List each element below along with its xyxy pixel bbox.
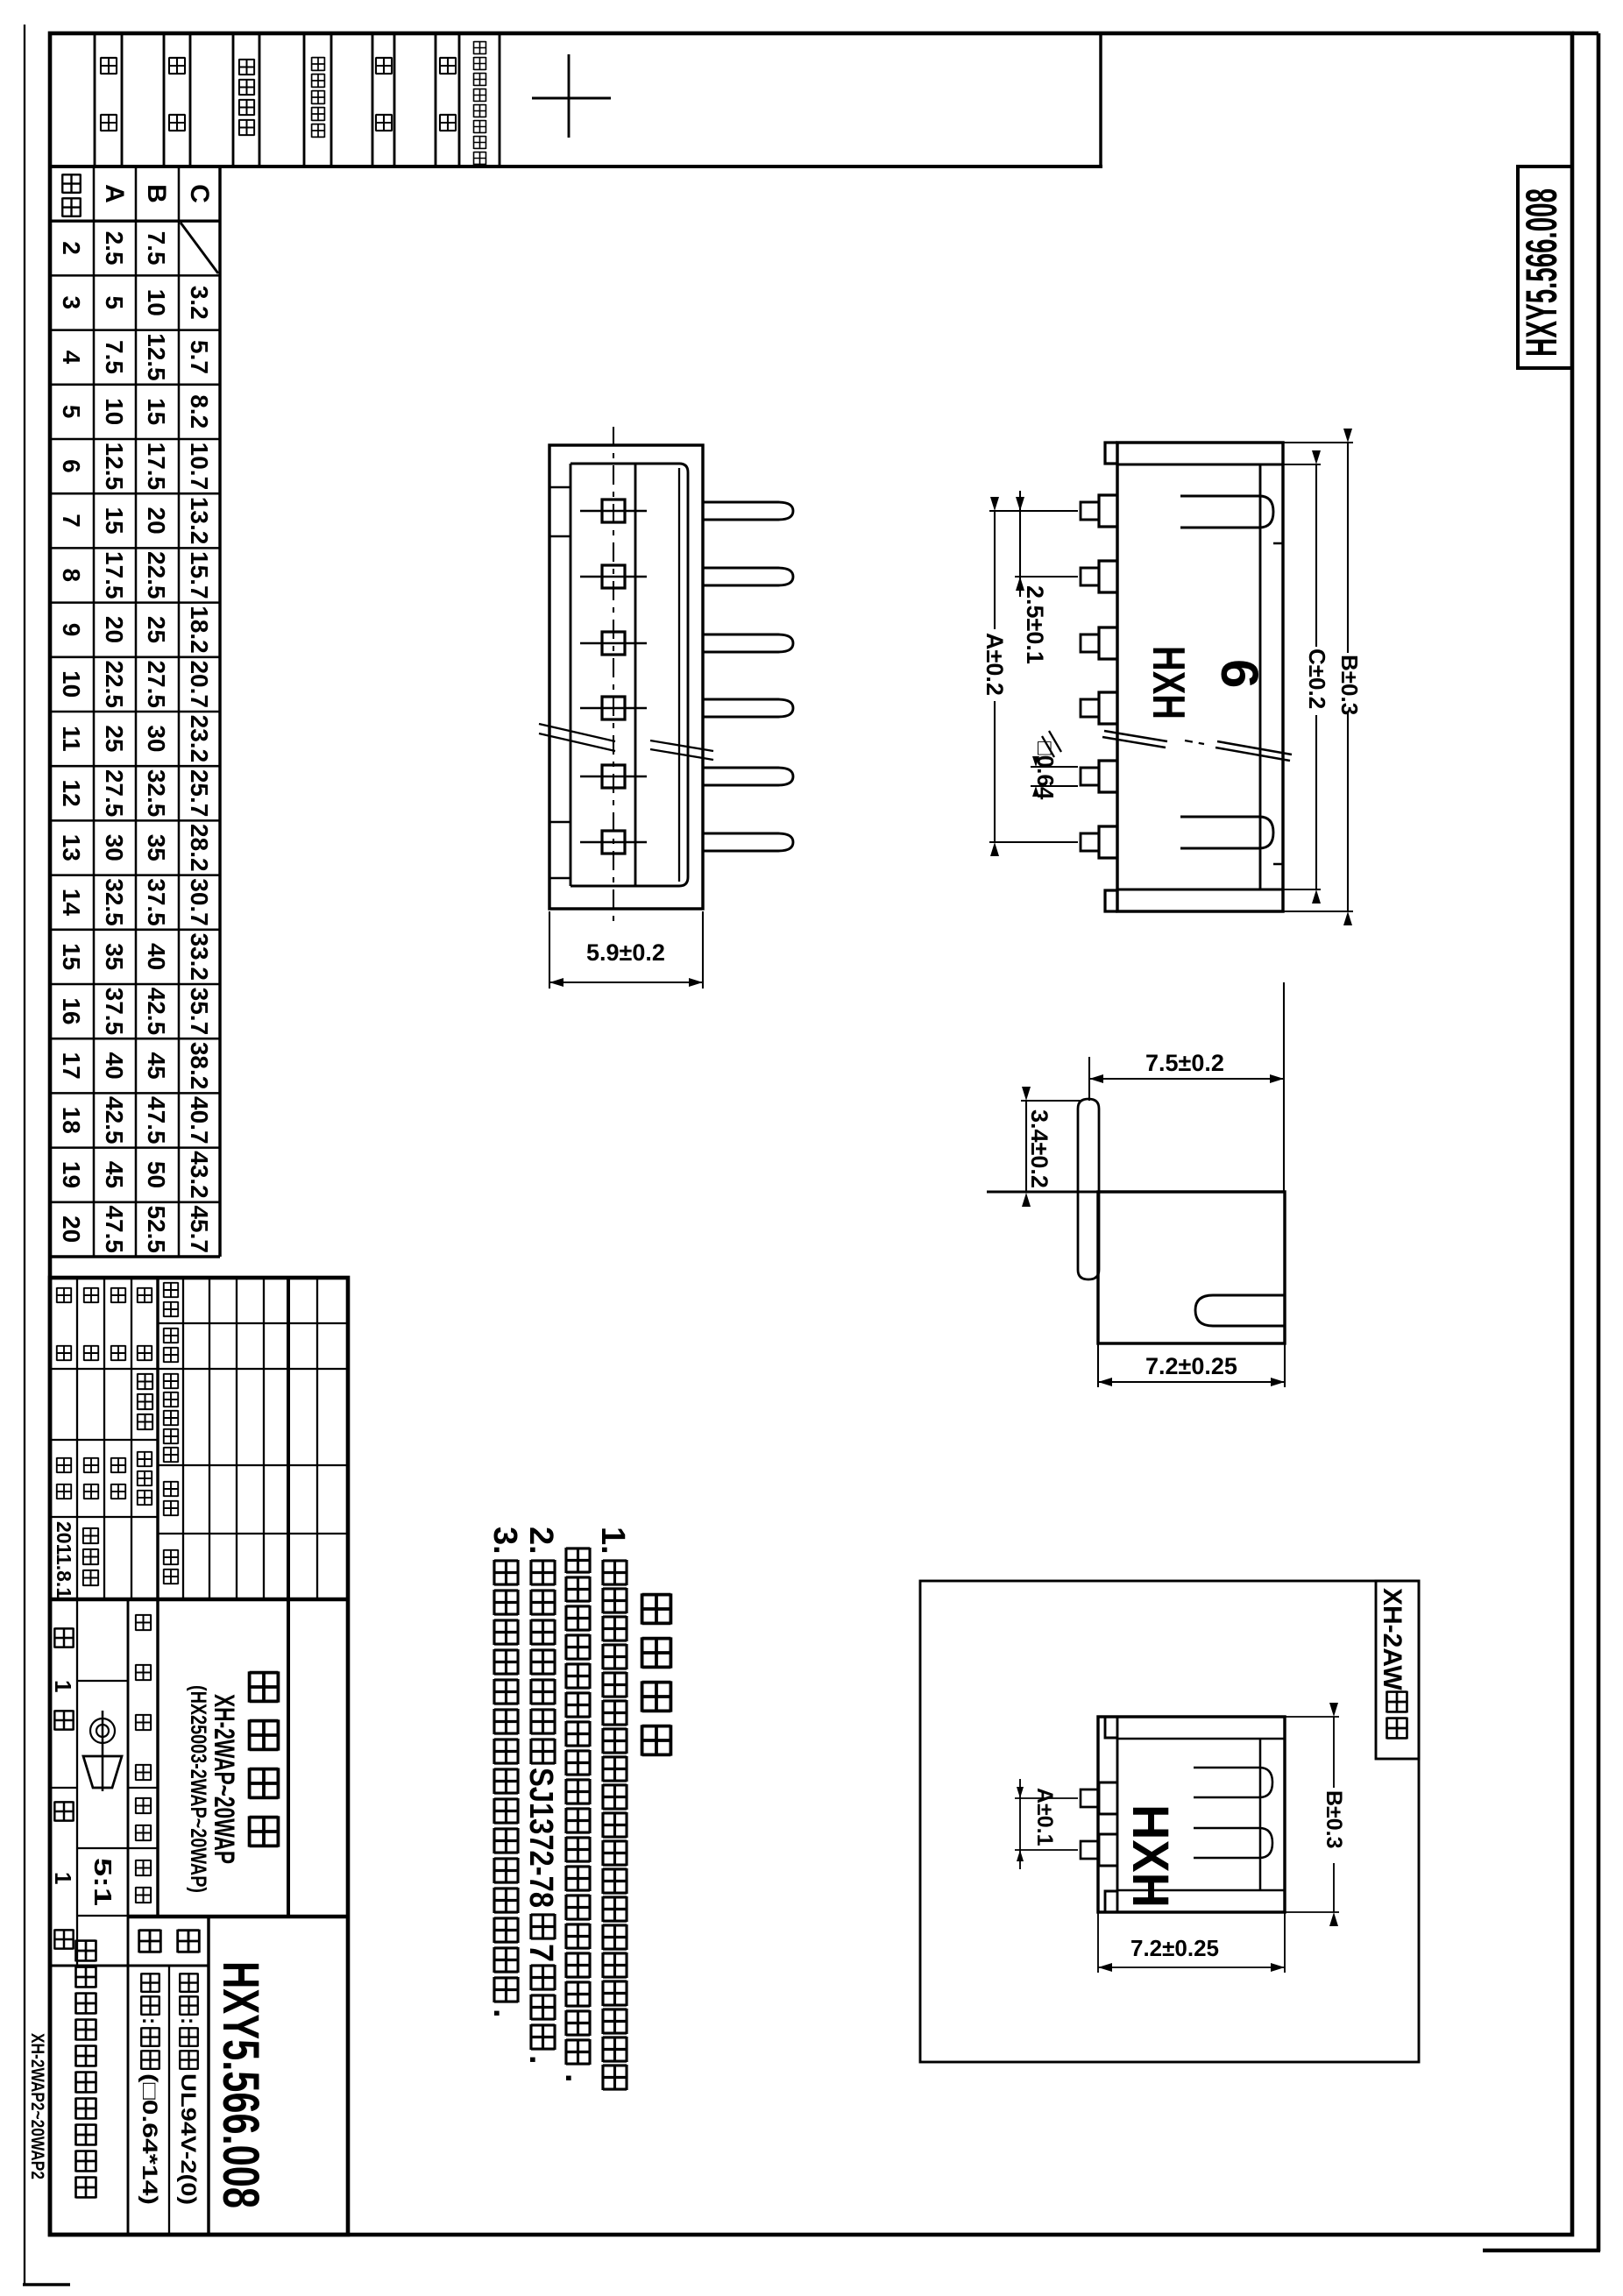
svg-text:30: 30 — [143, 725, 170, 752]
svg-text:37.5: 37.5 — [143, 878, 170, 926]
svg-text:HXH: HXH — [1122, 1804, 1179, 1908]
svg-text:43.2: 43.2 — [186, 1151, 213, 1199]
svg-text:5: 5 — [101, 296, 128, 310]
svg-text:15.7: 15.7 — [186, 551, 213, 599]
svg-text:52.5: 52.5 — [143, 1205, 170, 1253]
svg-text:38.2: 38.2 — [186, 1042, 213, 1090]
svg-text:1.: 1. — [594, 1527, 631, 1555]
svg-text:14: 14 — [58, 889, 85, 917]
svg-text:13: 13 — [58, 834, 85, 861]
svg-text:18.2: 18.2 — [186, 606, 213, 654]
svg-text:2011.8.1: 2011.8.1 — [53, 1521, 75, 1598]
svg-text:7.2±0.25: 7.2±0.25 — [1145, 1353, 1237, 1379]
svg-text:4: 4 — [58, 351, 85, 365]
svg-text:45.7: 45.7 — [186, 1205, 213, 1253]
svg-text:2.5: 2.5 — [101, 231, 128, 266]
svg-text:25.7: 25.7 — [186, 769, 213, 818]
svg-text:20: 20 — [143, 507, 170, 535]
svg-text:1: 1 — [50, 1680, 76, 1692]
svg-text:.: . — [486, 2009, 523, 2018]
svg-text:16: 16 — [58, 997, 85, 1024]
svg-text:.: . — [558, 2073, 595, 2083]
svg-text:9: 9 — [58, 623, 85, 637]
svg-text:1: 1 — [50, 1872, 76, 1884]
svg-text:12.5: 12.5 — [101, 443, 128, 491]
svg-text:19: 19 — [58, 1161, 85, 1188]
svg-text:45: 45 — [101, 1161, 128, 1188]
svg-text:6: 6 — [58, 459, 85, 473]
svg-text:2.5±0.1: 2.5±0.1 — [1022, 585, 1048, 664]
svg-text:2: 2 — [58, 241, 85, 255]
svg-text:3: 3 — [58, 296, 85, 310]
svg-text:3.: 3. — [486, 1527, 523, 1555]
svg-text:35: 35 — [143, 834, 170, 861]
svg-text:7.2±0.25: 7.2±0.25 — [1130, 1935, 1219, 1961]
svg-text:7.5: 7.5 — [143, 231, 170, 266]
svg-text:20: 20 — [58, 1215, 85, 1243]
svg-text:7.5±0.2: 7.5±0.2 — [1145, 1050, 1224, 1076]
svg-text:30: 30 — [101, 834, 128, 861]
svg-text:7: 7 — [522, 1944, 559, 1962]
svg-text:28.2: 28.2 — [186, 824, 213, 872]
svg-text:8.2: 8.2 — [186, 394, 213, 429]
svg-text:27.5: 27.5 — [101, 769, 128, 818]
svg-text:47.5: 47.5 — [143, 1096, 170, 1144]
svg-text:3.2: 3.2 — [186, 286, 213, 320]
svg-text:□0.64: □0.64 — [1032, 741, 1059, 800]
svg-text:12: 12 — [58, 780, 85, 807]
svg-text:40: 40 — [101, 1052, 128, 1080]
svg-text:25: 25 — [101, 725, 128, 752]
svg-text:2.: 2. — [522, 1527, 559, 1555]
svg-text:17.5: 17.5 — [143, 443, 170, 491]
svg-text:A±0.1: A±0.1 — [1032, 1788, 1057, 1846]
svg-text:B±0.3: B±0.3 — [1322, 1790, 1346, 1849]
svg-text:10: 10 — [143, 289, 170, 316]
svg-text:17: 17 — [58, 1052, 85, 1080]
svg-text:33.2: 33.2 — [186, 932, 213, 981]
svg-text:50: 50 — [143, 1161, 170, 1188]
svg-text:37.5: 37.5 — [101, 988, 128, 1036]
svg-text:45: 45 — [143, 1052, 170, 1080]
svg-text:15: 15 — [143, 398, 170, 425]
svg-text:.: . — [522, 2055, 559, 2065]
svg-text:UL94V-2(0): UL94V-2(0) — [176, 2073, 200, 2205]
svg-text:12.5: 12.5 — [143, 333, 170, 381]
svg-text:42.5: 42.5 — [101, 1096, 128, 1144]
svg-text:27.5: 27.5 — [143, 660, 170, 708]
svg-text:23.2: 23.2 — [186, 715, 213, 763]
svg-text:(□0.64*14): (□0.64*14) — [138, 2073, 161, 2205]
svg-text:HXH: HXH — [1143, 646, 1194, 719]
svg-text:A: A — [100, 184, 129, 203]
svg-text:A±0.2: A±0.2 — [982, 633, 1008, 696]
svg-text:5.7: 5.7 — [186, 340, 213, 374]
svg-text:40: 40 — [143, 943, 170, 970]
svg-text::: : — [176, 2017, 200, 2024]
svg-text:47.5: 47.5 — [101, 1205, 128, 1253]
svg-text:5.9±0.2: 5.9±0.2 — [586, 939, 665, 966]
svg-text:15: 15 — [101, 507, 128, 535]
svg-text:17.5: 17.5 — [101, 551, 128, 599]
svg-text:HXY5.566.008: HXY5.566.008 — [212, 1961, 269, 2208]
svg-text:8: 8 — [58, 569, 85, 583]
svg-text:6: 6 — [1210, 659, 1269, 688]
svg-text:11: 11 — [58, 726, 85, 752]
svg-text:35: 35 — [101, 943, 128, 970]
svg-text:B: B — [142, 184, 171, 203]
svg-text:30.7: 30.7 — [186, 878, 213, 926]
svg-text:32.5: 32.5 — [101, 878, 128, 926]
svg-text:40.7: 40.7 — [186, 1096, 213, 1144]
svg-text:B±0.3: B±0.3 — [1336, 655, 1363, 715]
svg-text:3.4±0.2: 3.4±0.2 — [1026, 1109, 1052, 1188]
svg-text:XH-2AW: XH-2AW — [1378, 1588, 1407, 1690]
svg-text:13.2: 13.2 — [186, 497, 213, 545]
svg-text:10.7: 10.7 — [186, 443, 213, 491]
svg-text:10: 10 — [101, 398, 128, 425]
svg-text:32.5: 32.5 — [143, 769, 170, 818]
svg-text:15: 15 — [58, 943, 85, 970]
svg-text:XH-2WAP2~20WAP2: XH-2WAP2~20WAP2 — [27, 2033, 47, 2179]
svg-text:20.7: 20.7 — [186, 660, 213, 708]
svg-text:25: 25 — [143, 616, 170, 643]
svg-text:18: 18 — [58, 1107, 85, 1134]
svg-text:5:1: 5:1 — [89, 1858, 117, 1906]
svg-text:(HX25003-2WAP~20WAP): (HX25003-2WAP~20WAP) — [186, 1685, 210, 1893]
svg-text::: : — [138, 2017, 161, 2024]
svg-text:22.5: 22.5 — [101, 660, 128, 708]
svg-text:HXY5.566.008: HXY5.566.008 — [1517, 188, 1566, 357]
svg-text:C: C — [185, 184, 214, 203]
svg-text:C±0.2: C±0.2 — [1304, 648, 1330, 709]
svg-text:42.5: 42.5 — [143, 988, 170, 1036]
svg-text:7: 7 — [58, 514, 85, 528]
svg-text:20: 20 — [101, 616, 128, 643]
svg-text:5: 5 — [58, 405, 85, 419]
svg-text:10: 10 — [58, 670, 85, 698]
svg-text:35.7: 35.7 — [186, 988, 213, 1036]
svg-text:XH-2WAP~20WAP: XH-2WAP~20WAP — [209, 1694, 240, 1864]
svg-text:22.5: 22.5 — [143, 551, 170, 599]
svg-text:SJ1372-78: SJ1372-78 — [522, 1768, 559, 1908]
svg-text:7.5: 7.5 — [101, 340, 128, 374]
